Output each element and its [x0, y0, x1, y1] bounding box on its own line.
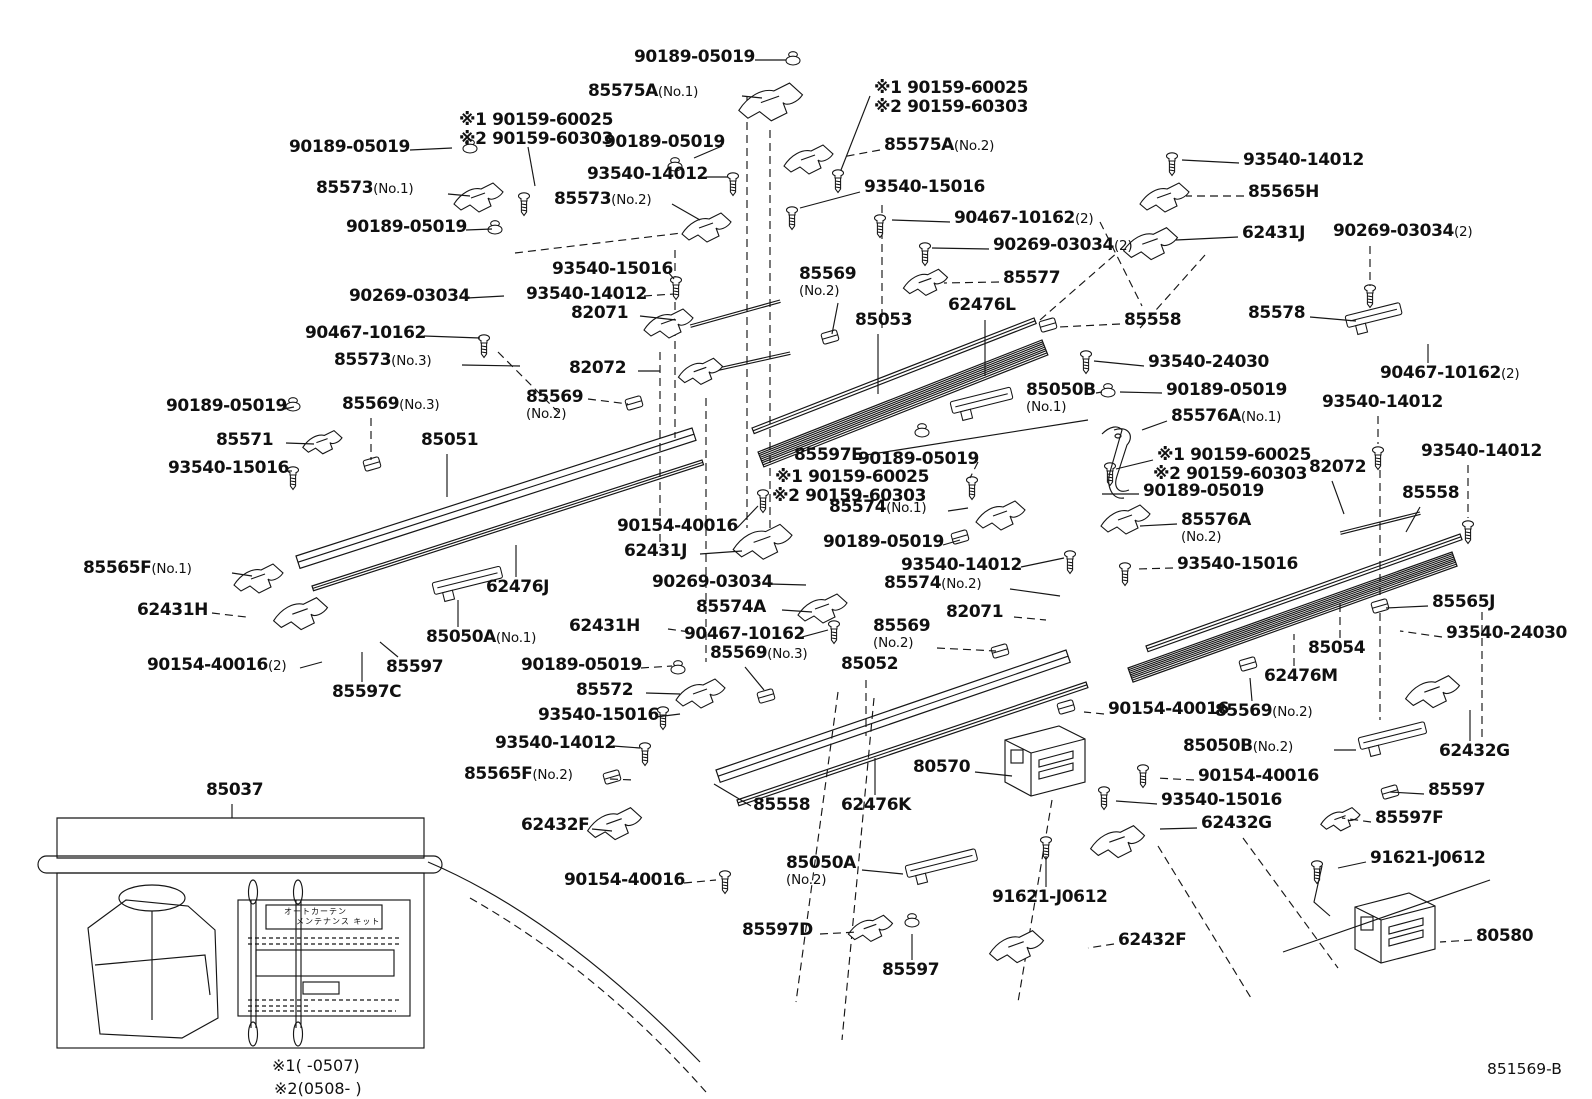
part-label: 85052 — [841, 656, 898, 674]
part-number: 90154-40016 — [147, 655, 268, 675]
part-number: 93540-14012 — [1322, 392, 1443, 412]
bracket-icon — [454, 183, 503, 212]
grommet-icon — [1101, 384, 1115, 397]
part-number: 85597 — [882, 960, 939, 980]
screw-icon — [1065, 551, 1076, 574]
part-number-suffix: (No.2) — [799, 284, 856, 298]
part-number: 82072 — [569, 358, 626, 378]
clip-icon — [1057, 700, 1075, 715]
bracket-icon — [990, 931, 1044, 963]
part-number-suffix: (No.1) — [658, 84, 698, 100]
part-label: 85597E — [794, 447, 862, 465]
screw-icon — [967, 477, 978, 500]
part-label: 90189-05019 — [346, 219, 467, 237]
part-number: 62431J — [1242, 223, 1305, 243]
part-number: ※2 90159-60303 — [874, 97, 1028, 117]
part-label: 85558 — [1402, 485, 1459, 503]
part-label: 85565J — [1432, 594, 1495, 612]
part-number: 85573 — [334, 350, 391, 370]
screw-icon — [640, 743, 651, 766]
bracket-icon — [903, 269, 947, 295]
part-label: ※1 90159-60025 — [459, 112, 613, 130]
footnote-1: ※1( -0507) — [272, 1056, 360, 1075]
part-label: 62431H — [569, 618, 640, 636]
part-label: 90467-10162 — [684, 626, 805, 644]
part-label: ※2 90159-60303 — [874, 99, 1028, 117]
part-number: 85565F — [83, 558, 151, 578]
part-label: 62431J — [1242, 225, 1305, 243]
part-number: 90269-03034 — [993, 235, 1114, 255]
part-label: 91621-J0612 — [992, 889, 1107, 907]
part-number-suffix: (No.2) — [1181, 530, 1251, 544]
part-number: 85578 — [1248, 303, 1305, 323]
part-number: 85050A — [426, 627, 496, 647]
grommet-icon — [786, 52, 800, 65]
part-number: 90154-40016 — [617, 516, 738, 536]
bracket-icon — [682, 213, 731, 242]
screw-icon — [671, 277, 682, 300]
part-number: 85050B — [1026, 380, 1096, 400]
part-number: 62432G — [1439, 741, 1510, 761]
part-label: 91621-J0612 — [1370, 850, 1485, 868]
part-label: 93540-15016 — [1177, 556, 1298, 574]
part-label: 90189-05019 — [604, 134, 725, 152]
part-label: 85574(No.1) — [829, 499, 927, 517]
part-number: 82072 — [1309, 457, 1366, 477]
part-number: 90189-05019 — [166, 396, 287, 416]
bracket-icon — [733, 524, 792, 559]
part-number-suffix: (2) — [1501, 366, 1520, 382]
part-number: 93540-14012 — [901, 555, 1022, 575]
part-label: 93540-24030 — [1148, 354, 1269, 372]
part-label: 90269-03034 — [349, 288, 470, 306]
part-label: ※1 90159-60025 — [775, 469, 929, 487]
part-label: 62432F — [1118, 932, 1186, 950]
part-label: 93540-15016 — [552, 261, 673, 279]
part-label: 93540-15016 — [168, 460, 289, 478]
screw-icon — [1463, 521, 1474, 544]
clip-icon — [1371, 599, 1389, 614]
bottle-illustration — [88, 885, 218, 1038]
part-label: 85597C — [332, 684, 401, 702]
part-label: 90189-05019 — [1143, 483, 1264, 501]
part-number: 85037 — [206, 780, 263, 800]
part-number: 90269-03034 — [1333, 221, 1454, 241]
grommet-icon — [286, 398, 300, 411]
part-number: ※1 90159-60025 — [775, 467, 929, 487]
part-number-suffix: (No.1) — [373, 181, 413, 197]
rail-plate-icon — [1358, 722, 1429, 759]
bracket-icon — [303, 431, 342, 454]
screw-icon — [1138, 765, 1149, 788]
part-number: 85050A — [786, 853, 856, 873]
bracket-icon — [1406, 676, 1460, 708]
part-label: 85597 — [386, 659, 443, 677]
part-number: 85052 — [841, 654, 898, 674]
part-number-suffix: (No.1) — [1241, 409, 1281, 425]
part-label: 90189-05019 — [634, 49, 755, 67]
part-number: 62431H — [569, 616, 640, 636]
part-label: 90189-05019 — [823, 534, 944, 552]
part-label: 85558 — [753, 797, 810, 815]
part-label: 85565F(No.1) — [83, 560, 192, 578]
part-number-suffix: (No.2) — [954, 138, 994, 154]
bracket-icon — [798, 594, 847, 623]
part-label: 85597D — [742, 922, 813, 940]
part-number: 62431H — [137, 600, 208, 620]
screw-icon — [833, 170, 844, 193]
part-label: 85569(No.2) — [799, 266, 856, 298]
part-label: 85576A(No.1) — [1171, 408, 1281, 426]
screw-icon — [479, 335, 490, 358]
part-label: 85572 — [576, 682, 633, 700]
part-number: 85575A — [884, 135, 954, 155]
part-number: 90269-03034 — [349, 286, 470, 306]
part-number: 93540-15016 — [1161, 790, 1282, 810]
part-label: 85577 — [1003, 270, 1060, 288]
screw-icon — [1099, 787, 1110, 810]
part-number: 93540-14012 — [1421, 441, 1542, 461]
bracket-icon — [644, 309, 693, 338]
part-label: 85558 — [1124, 312, 1181, 330]
part-number: 93540-14012 — [587, 164, 708, 184]
part-number: 85572 — [576, 680, 633, 700]
part-number: 93540-24030 — [1446, 623, 1567, 643]
part-number: 93540-14012 — [526, 284, 647, 304]
grommet-icon — [488, 221, 502, 234]
grommet-icon — [671, 661, 685, 674]
clip-icon — [757, 689, 775, 704]
part-label: 82072 — [1309, 459, 1366, 477]
part-number: 85565J — [1432, 592, 1495, 612]
part-number: 85569 — [710, 643, 767, 663]
part-number: 93540-15016 — [1177, 554, 1298, 574]
part-number: 62476K — [841, 795, 911, 815]
part-label: 93540-15016 — [538, 707, 659, 725]
part-number: 85597F — [1375, 808, 1443, 828]
part-label: 90189-05019 — [166, 398, 287, 416]
rail-plate-icon — [1345, 302, 1404, 336]
part-number: 85569 — [799, 264, 856, 284]
part-number: 85558 — [1124, 310, 1181, 330]
screw-icon — [787, 207, 798, 230]
part-number: 90189-05019 — [858, 449, 979, 469]
part-number: 62476M — [1264, 666, 1338, 686]
clip-icon — [1039, 318, 1057, 333]
bracket-icon — [1091, 826, 1145, 858]
part-number: 80570 — [913, 757, 970, 777]
part-number: 85574 — [884, 573, 941, 593]
kit-sheet-title-line2: メンテナンス キット — [296, 917, 380, 927]
part-label: 62476L — [948, 297, 1016, 315]
part-label: 62431J — [624, 543, 687, 561]
part-number-suffix: (No.3) — [391, 353, 431, 369]
part-number: 62431J — [624, 541, 687, 561]
part-number-suffix: (No.2) — [1272, 704, 1312, 720]
part-number: 85569 — [526, 387, 583, 407]
part-label: 93540-15016 — [1161, 792, 1282, 810]
part-number: 90189-05019 — [346, 217, 467, 237]
clip-icon — [363, 457, 381, 472]
part-label: 90154-40016 — [1108, 701, 1229, 719]
part-label: 93540-24030 — [1446, 625, 1567, 643]
screw-icon — [1081, 351, 1092, 374]
part-number: 90189-05019 — [289, 137, 410, 157]
part-label: 90467-10162 — [305, 325, 426, 343]
part-number: 91621-J0612 — [992, 887, 1107, 907]
part-number: 85597 — [1428, 780, 1485, 800]
part-number: 93540-15016 — [552, 259, 673, 279]
part-number-suffix: (No.2) — [611, 192, 651, 208]
part-number: 85569 — [342, 394, 399, 414]
part-number-suffix: (No.2) — [941, 576, 981, 592]
bracket-icon — [1140, 183, 1189, 212]
part-number: 85053 — [855, 310, 912, 330]
part-label: 85597F — [1375, 810, 1443, 828]
part-number: 93540-15016 — [168, 458, 289, 478]
part-number: 62432G — [1201, 813, 1272, 833]
part-number: 85574A — [696, 597, 766, 617]
part-label: 85574(No.2) — [884, 575, 982, 593]
screw-icon — [658, 707, 669, 730]
part-label: 93540-15016 — [864, 179, 985, 197]
part-number: ※1 90159-60025 — [874, 78, 1028, 98]
part-number-suffix: (No.2) — [786, 873, 856, 887]
part-label: 85050B(No.1) — [1026, 382, 1096, 414]
part-label: 82071 — [946, 604, 1003, 622]
part-number: 62432F — [1118, 930, 1186, 950]
part-label: 93540-14012 — [1243, 152, 1364, 170]
part-label: 90154-40016 — [1198, 768, 1319, 786]
part-number: 62476J — [486, 577, 549, 597]
screw-icon — [519, 193, 530, 216]
figure-code: 851569-B — [1487, 1060, 1562, 1078]
part-label: 62432G — [1439, 743, 1510, 761]
part-label: 85050A(No.1) — [426, 629, 536, 647]
part-number: 90154-40016 — [564, 870, 685, 890]
part-label: 90269-03034(2) — [1333, 223, 1472, 241]
clip-icon — [821, 330, 839, 345]
part-label: 85569(No.3) — [710, 645, 808, 663]
part-number: ※1 90159-60025 — [459, 110, 613, 130]
part-number: 85051 — [421, 430, 478, 450]
part-label: 85571 — [216, 432, 273, 450]
part-number: 82071 — [946, 602, 1003, 622]
part-label: 90189-05019 — [521, 657, 642, 675]
part-number: 93540-24030 — [1148, 352, 1269, 372]
screw-icon — [720, 871, 731, 894]
part-number-suffix: (No.1) — [886, 500, 926, 516]
part-label: 85597 — [1428, 782, 1485, 800]
part-label: 90154-40016 — [564, 872, 685, 890]
bracket-icon — [1101, 505, 1150, 534]
bracket-icon — [676, 679, 725, 708]
part-number: 85576A — [1171, 406, 1241, 426]
part-number-suffix: (No.2) — [532, 767, 572, 783]
part-number: 85597E — [794, 445, 862, 465]
part-label: 82072 — [569, 360, 626, 378]
part-label: 90269-03034(2) — [993, 237, 1132, 255]
part-number-suffix: (No.2) — [526, 407, 583, 421]
part-label: 93540-14012 — [495, 735, 616, 753]
part-label: 85575A(No.2) — [884, 137, 994, 155]
part-number: 85558 — [1402, 483, 1459, 503]
part-label: 90269-03034 — [652, 574, 773, 592]
part-label: 62476J — [486, 579, 549, 597]
screw-icon — [758, 490, 769, 513]
part-number: 93540-15016 — [538, 705, 659, 725]
screw-icon — [920, 243, 931, 266]
part-label: 85569(No.2) — [873, 618, 930, 650]
part-number: 85571 — [216, 430, 273, 450]
part-label: 90189-05019 — [858, 451, 979, 469]
screw-icon — [288, 467, 299, 490]
part-label: 85565F(No.2) — [464, 766, 573, 784]
part-number: 85577 — [1003, 268, 1060, 288]
control-unit-icon — [1005, 726, 1085, 796]
part-label: 85569(No.2) — [526, 389, 583, 421]
part-label: 85573(No.1) — [316, 180, 414, 198]
part-label: ※1 90159-60025 — [1157, 447, 1311, 465]
part-label: 62476M — [1264, 668, 1338, 686]
part-number-suffix: (2) — [1075, 211, 1094, 227]
part-label: 90154-40016(2) — [147, 657, 286, 675]
part-label: 93540-14012 — [1322, 394, 1443, 412]
part-number: 90467-10162 — [684, 624, 805, 644]
rail-plate-icon — [950, 387, 1015, 422]
footnote-2: ※2(0508- ) — [274, 1079, 362, 1098]
part-label: 85578 — [1248, 305, 1305, 323]
kit-sheet-title-line1: オートカーテン — [284, 907, 347, 917]
part-number-suffix: (No.3) — [767, 646, 807, 662]
screw-icon — [1365, 285, 1376, 308]
part-number: 80580 — [1476, 926, 1533, 946]
part-number: 85576A — [1181, 510, 1251, 530]
part-number: 85575A — [588, 81, 658, 101]
maintenance-kit-box — [38, 818, 442, 1048]
part-number: 85054 — [1308, 638, 1365, 658]
part-number: 85565F — [464, 764, 532, 784]
clip-icon — [603, 770, 621, 785]
part-number: 90269-03034 — [652, 572, 773, 592]
part-number-suffix: (2) — [1114, 238, 1133, 254]
part-label: 85573(No.3) — [334, 352, 432, 370]
part-number: ※1 90159-60025 — [1157, 445, 1311, 465]
screw-icon — [875, 215, 886, 238]
part-label: 62432G — [1201, 815, 1272, 833]
part-number: 85573 — [554, 189, 611, 209]
bracket-icon — [678, 358, 722, 384]
clip-icon — [625, 396, 643, 411]
part-number: 90154-40016 — [1108, 699, 1229, 719]
part-number: 85565H — [1248, 182, 1319, 202]
part-number: 85569 — [873, 616, 930, 636]
screw-icon — [1167, 153, 1178, 176]
part-number: 90467-10162 — [305, 323, 426, 343]
grommet-icon — [905, 914, 919, 927]
screw-icon — [728, 173, 739, 196]
screw-icon — [829, 621, 840, 644]
part-label: 85565H — [1248, 184, 1319, 202]
part-number: 90189-05019 — [1166, 380, 1287, 400]
part-label: 85054 — [1308, 640, 1365, 658]
part-number: 91621-J0612 — [1370, 848, 1485, 868]
rail-plate-icon — [905, 849, 980, 887]
part-number-suffix: (No.1) — [1026, 400, 1096, 414]
part-label: 93540-14012 — [526, 286, 647, 304]
part-number-suffix: (No.2) — [1253, 739, 1293, 755]
part-number: 85573 — [316, 178, 373, 198]
part-number: 85597D — [742, 920, 813, 940]
part-number: 90189-05019 — [823, 532, 944, 552]
part-label: 62431H — [137, 602, 208, 620]
part-label: 90467-10162(2) — [954, 210, 1093, 228]
screw-icon — [1373, 447, 1384, 470]
part-label: 62432F — [521, 817, 589, 835]
part-label: 93540-14012 — [587, 166, 708, 184]
part-label: 85574A — [696, 599, 766, 617]
part-label: 85051 — [421, 432, 478, 450]
part-number: 90189-05019 — [604, 132, 725, 152]
part-number: ※2 90159-60303 — [459, 129, 613, 149]
part-number-suffix: (No.2) — [873, 636, 930, 650]
part-label: 85053 — [855, 312, 912, 330]
bracket-icon — [588, 808, 642, 840]
part-number: 90189-05019 — [1143, 481, 1264, 501]
part-label: 90189-05019 — [1166, 382, 1287, 400]
part-number: 62476L — [948, 295, 1016, 315]
part-label: 85050B(No.2) — [1183, 738, 1293, 756]
part-number: 85597C — [332, 682, 401, 702]
part-number: 90189-05019 — [634, 47, 755, 67]
part-number: 85574 — [829, 497, 886, 517]
part-label: 85573(No.2) — [554, 191, 652, 209]
part-label: 85037 — [206, 782, 263, 800]
part-label: 85050A(No.2) — [786, 855, 856, 887]
part-number-suffix: (2) — [1454, 224, 1473, 240]
part-label: 85575A(No.1) — [588, 83, 698, 101]
part-label: ※1 90159-60025 — [874, 80, 1028, 98]
part-number: 85558 — [753, 795, 810, 815]
part-label: 82071 — [571, 305, 628, 323]
bracket-icon — [848, 915, 892, 941]
part-label: 62476K — [841, 797, 911, 815]
part-number: 93540-14012 — [495, 733, 616, 753]
part-label: 85569(No.3) — [342, 396, 440, 414]
part-number: 62432F — [521, 815, 589, 835]
part-number-suffix: (No.3) — [399, 397, 439, 413]
part-label: 90467-10162(2) — [1380, 365, 1519, 383]
clip-icon — [1239, 657, 1257, 672]
part-number-suffix: (No.1) — [151, 561, 191, 577]
part-number: 93540-14012 — [1243, 150, 1364, 170]
curved-bracket-icon — [1102, 427, 1130, 498]
bracket-icon — [274, 598, 328, 630]
bracket-icon — [976, 501, 1025, 530]
part-number: 82071 — [571, 303, 628, 323]
part-number-suffix: (No.1) — [496, 630, 536, 646]
part-number: 85597 — [386, 657, 443, 677]
part-number: 90467-10162 — [954, 208, 1075, 228]
grommet-icon — [915, 424, 929, 437]
part-number: 90189-05019 — [521, 655, 642, 675]
part-number: 93540-15016 — [864, 177, 985, 197]
screw-icon — [1120, 563, 1131, 586]
part-label: 93540-14012 — [1421, 443, 1542, 461]
bracket-icon — [234, 564, 283, 593]
part-label: 80570 — [913, 759, 970, 777]
part-label: 80580 — [1476, 928, 1533, 946]
